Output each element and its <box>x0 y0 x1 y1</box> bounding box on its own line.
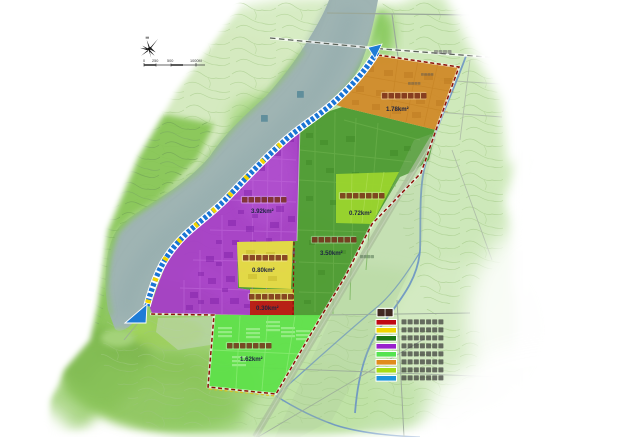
svg-text:0.30km²: 0.30km² <box>256 305 279 312</box>
svg-text:0: 0 <box>143 59 145 63</box>
svg-text:3.50km²: 3.50km² <box>320 250 343 257</box>
svg-text:500: 500 <box>167 59 173 63</box>
svg-text:3.92km²: 3.92km² <box>251 208 274 215</box>
svg-text:1.78km²: 1.78km² <box>386 106 409 113</box>
svg-text:0.72km²: 0.72km² <box>349 210 372 217</box>
svg-text:0.80km²: 0.80km² <box>252 267 275 274</box>
svg-text:1000M: 1000M <box>190 59 202 63</box>
svg-text:250: 250 <box>152 59 158 63</box>
svg-text:1.62km²: 1.62km² <box>240 356 263 363</box>
